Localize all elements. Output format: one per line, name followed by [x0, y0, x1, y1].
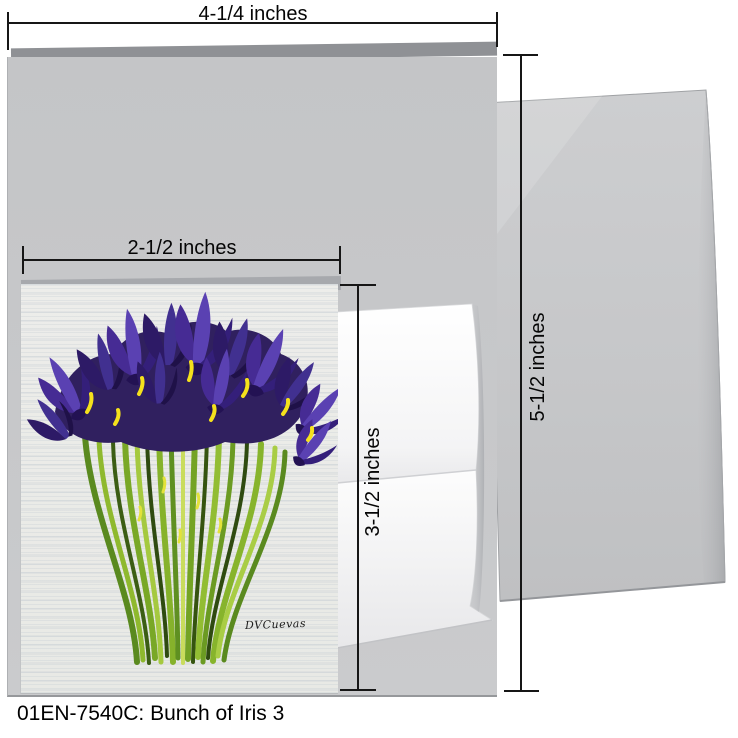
product-caption: 01EN-7540C: Bunch of Iris 3: [17, 702, 284, 726]
dimension-tick-left: [7, 12, 9, 50]
iris-painting: [21, 284, 338, 694]
dimension-label-small-width: 2-1/2 inches: [23, 237, 341, 259]
dimension-line-large-height: [520, 55, 522, 692]
dimension-tick-bottom: [340, 689, 376, 691]
dimension-label-large-height: 5-1/2 inches: [527, 277, 547, 457]
dimension-label-small-height: 3-1/2 inches: [362, 392, 382, 572]
dimension-tick-right: [496, 12, 498, 47]
dimension-line-small-height: [357, 285, 359, 691]
dimension-tick-left: [22, 246, 24, 274]
product-mockup: DVCuevas 4-1/4 inches 2-1/2 inches 3-1/2…: [0, 0, 738, 738]
dimension-tick-top: [340, 284, 376, 286]
dimension-tick-top: [503, 54, 538, 56]
dimension-tick-right: [339, 246, 341, 274]
artist-signature: DVCuevas: [245, 617, 306, 632]
dimension-tick-bottom: [504, 690, 539, 692]
dimension-line-small-width: [23, 259, 341, 261]
dimension-line-large-width: [8, 22, 498, 24]
small-card: DVCuevas: [20, 284, 338, 694]
